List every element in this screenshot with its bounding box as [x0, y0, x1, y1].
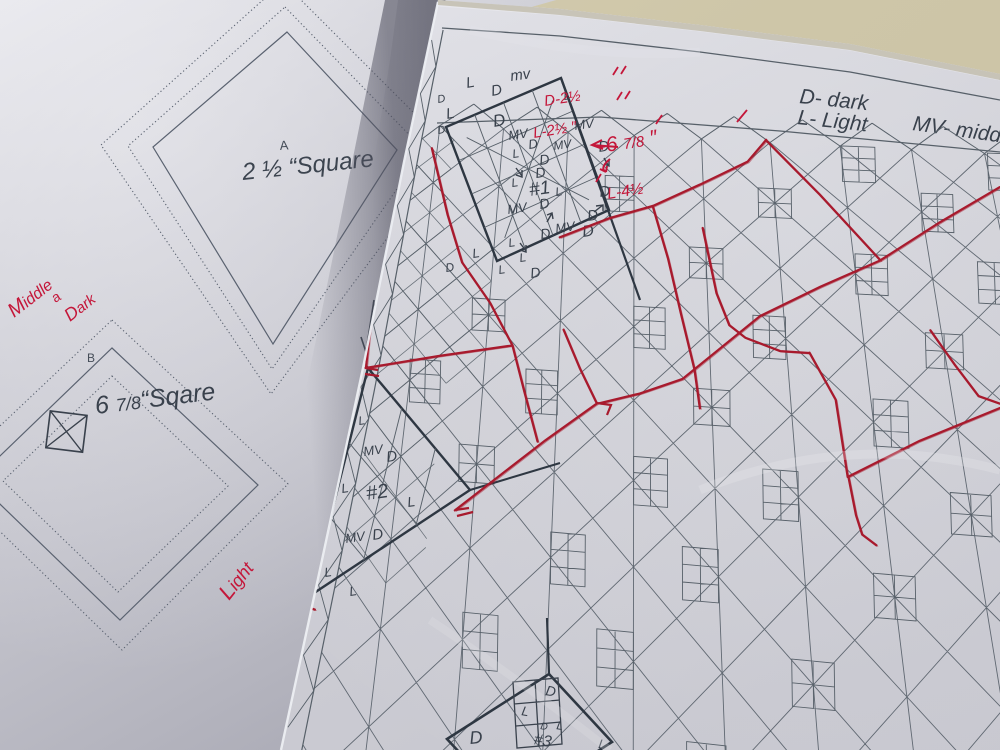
svg-text:MV: MV — [552, 136, 573, 153]
svg-text:A: A — [279, 137, 289, 153]
svg-text:D: D — [469, 727, 484, 748]
svg-text:MV: MV — [362, 441, 385, 459]
svg-text:#3: #3 — [532, 731, 553, 750]
svg-text:MV: MV — [344, 528, 367, 546]
svg-text:B: B — [87, 351, 95, 365]
svg-text:#2: #2 — [365, 480, 390, 505]
svg-text:mv: mv — [509, 65, 533, 85]
svg-text:MV: MV — [507, 125, 530, 143]
svg-text:MV: MV — [506, 199, 529, 217]
